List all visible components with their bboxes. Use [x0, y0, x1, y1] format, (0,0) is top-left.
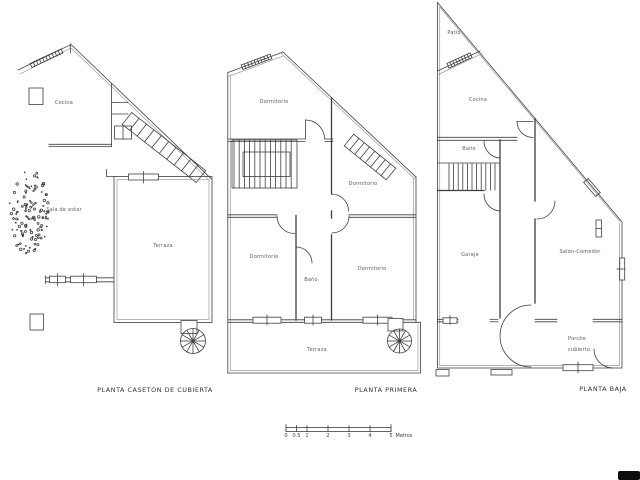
room-label-dormitorio-left: Dormitorio	[250, 254, 279, 260]
room-label-cocina-caseton: Cocina	[55, 100, 73, 106]
room-label-sala-de-estar: Sala de estar	[46, 207, 81, 213]
room-label-garaje: Garaje	[461, 252, 479, 258]
plan-caption-primera: PLANTA PRIMERA	[355, 386, 418, 394]
scale-tick-2: 2	[326, 433, 329, 439]
scale-unit-label: Metros	[396, 433, 413, 439]
room-label-terraza-primera: Terraza	[307, 347, 326, 353]
plan-caption-caseton: PLANTA CASETON DE CUBIERTA	[97, 386, 213, 394]
room-label-bano-baja: Baño	[462, 146, 476, 152]
scale-tick-0: 0	[284, 433, 287, 439]
room-label-cocina-baja: Cocina	[469, 97, 487, 103]
room-label-dormitorio-right-upper: Dormitorio	[349, 181, 378, 187]
room-label-patio: Patio	[447, 30, 460, 36]
plan-caption-baja: PLANTA BAJA	[579, 385, 626, 393]
scale-tick-5: 5	[389, 433, 392, 439]
room-label-bano-primera: Baño	[304, 277, 318, 283]
scale-tick-3: 3	[347, 433, 350, 439]
scale-tick-0-5: 0.5	[293, 433, 301, 439]
room-label-terraza-caseton: Terraza	[153, 243, 172, 249]
room-label-salon-comedor: Salón-Comedor	[559, 249, 600, 255]
scale-tick-4: 4	[368, 433, 371, 439]
scale-tick-1: 1	[305, 433, 308, 439]
floorplan-sheet: Cocina Sala de estar Terraza PLANTA CASE…	[0, 0, 640, 480]
room-label-porche-line2: cubierto	[568, 347, 590, 353]
room-label-porche-line1: Porche	[568, 336, 586, 342]
corner-black-box	[618, 471, 640, 480]
room-label-dormitorio-right-lower: Dormitorio	[358, 266, 387, 272]
labels-layer: Cocina Sala de estar Terraza PLANTA CASE…	[0, 0, 640, 480]
room-label-dormitorio-top: Dormitorio	[260, 99, 289, 105]
